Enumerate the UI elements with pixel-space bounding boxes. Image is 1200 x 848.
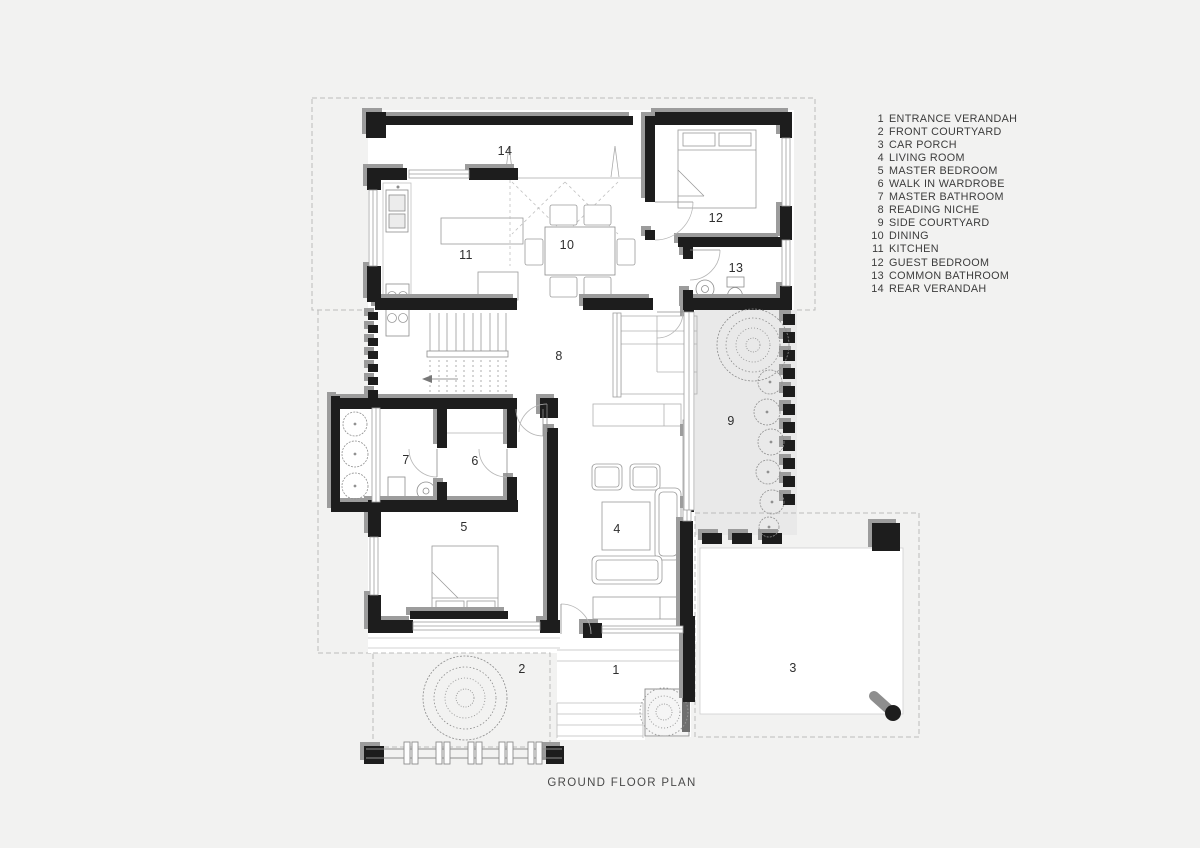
legend-label: LIVING ROOM — [889, 152, 965, 165]
floor-plan-page: { "page_title": "GROUND FLOOR PLAN", "ro… — [0, 0, 1200, 848]
room-label-common-bathroom: 13 — [729, 261, 744, 275]
legend-number: 7 — [869, 191, 884, 204]
legend-number: 2 — [869, 126, 884, 139]
room-label-entrance-verandah: 1 — [612, 663, 619, 677]
drawing-title: GROUND FLOOR PLAN — [547, 777, 696, 789]
legend-number: 3 — [869, 139, 884, 152]
legend-label: SIDE COURTYARD — [889, 217, 990, 230]
car-porch-slab — [700, 548, 903, 714]
room-legend: 1ENTRANCE VERANDAH 2FRONT COURTYARD 3CAR… — [869, 113, 1017, 296]
legend-row: 11KITCHEN — [869, 243, 1017, 256]
legend-label: MASTER BATHROOM — [889, 191, 1004, 204]
legend-row: 12GUEST BEDROOM — [869, 257, 1017, 270]
legend-label: GUEST BEDROOM — [889, 257, 989, 270]
room-label-master-bedroom: 5 — [460, 520, 467, 534]
legend-number: 8 — [869, 204, 884, 217]
room-label-dining: 10 — [560, 238, 575, 252]
legend-row: 1ENTRANCE VERANDAH — [869, 113, 1017, 126]
legend-label: COMMON BATHROOM — [889, 270, 1009, 283]
legend-label: FRONT COURTYARD — [889, 126, 1002, 139]
legend-row: 13COMMON BATHROOM — [869, 270, 1017, 283]
room-label-rear-verandah: 14 — [498, 144, 513, 158]
legend-number: 13 — [869, 270, 884, 283]
legend-number: 14 — [869, 283, 884, 296]
legend-label: REAR VERANDAH — [889, 283, 987, 296]
front-fence — [366, 742, 562, 764]
legend-row: 9SIDE COURTYARD — [869, 217, 1017, 230]
room-label-master-bathroom: 7 — [402, 453, 409, 467]
legend-number: 1 — [869, 113, 884, 126]
legend-number: 4 — [869, 152, 884, 165]
legend-number: 5 — [869, 165, 884, 178]
room-label-guest-bedroom: 12 — [709, 211, 724, 225]
legend-number: 6 — [869, 178, 884, 191]
legend-label: READING NICHE — [889, 204, 979, 217]
legend-row: 8READING NICHE — [869, 204, 1017, 217]
legend-number: 9 — [869, 217, 884, 230]
legend-row: 3CAR PORCH — [869, 139, 1017, 152]
room-label-living-room: 4 — [613, 522, 620, 536]
room-label-walk-in-wardrobe: 6 — [471, 454, 478, 468]
legend-row: 14REAR VERANDAH — [869, 283, 1017, 296]
legend-number: 10 — [869, 230, 884, 243]
room-label-front-courtyard: 2 — [518, 662, 525, 676]
room-label-kitchen: 11 — [459, 248, 473, 262]
legend-number: 11 — [869, 243, 884, 256]
legend-label: CAR PORCH — [889, 139, 957, 152]
legend-number: 12 — [869, 257, 884, 270]
legend-row: 5MASTER BEDROOM — [869, 165, 1017, 178]
room-label-side-courtyard: 9 — [727, 414, 734, 428]
legend-label: KITCHEN — [889, 243, 939, 256]
legend-label: WALK IN WARDROBE — [889, 178, 1005, 191]
legend-row: 2FRONT COURTYARD — [869, 126, 1017, 139]
legend-row: 10DINING — [869, 230, 1017, 243]
master-bed — [432, 546, 498, 616]
legend-label: ENTRANCE VERANDAH — [889, 113, 1017, 126]
legend-row: 4LIVING ROOM — [869, 152, 1017, 165]
floor-plan-drawing — [0, 0, 1200, 848]
legend-row: 6WALK IN WARDROBE — [869, 178, 1017, 191]
legend-label: DINING — [889, 230, 929, 243]
guest-bed — [678, 130, 756, 208]
room-label-car-porch: 3 — [789, 661, 796, 675]
room-label-reading-niche: 8 — [555, 349, 562, 363]
legend-row: 7MASTER BATHROOM — [869, 191, 1017, 204]
legend-label: MASTER BEDROOM — [889, 165, 998, 178]
front-courtyard-tree — [423, 656, 507, 740]
